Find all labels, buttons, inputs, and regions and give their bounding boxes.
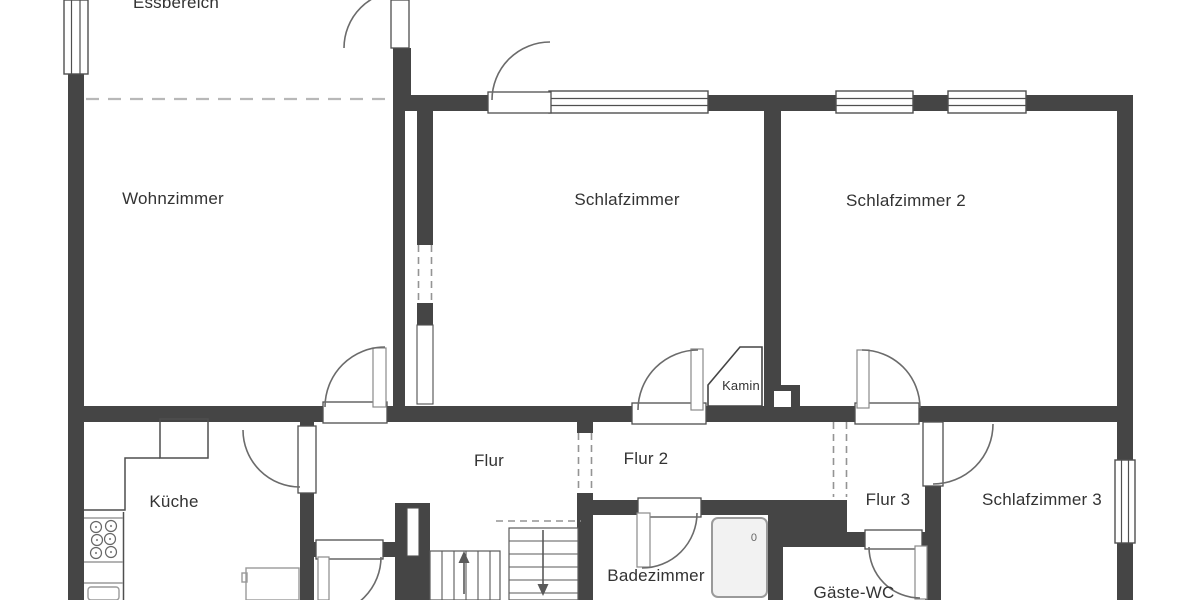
wall-segment: [577, 493, 593, 600]
wall-segment: [913, 95, 948, 111]
door-leaf: [691, 349, 703, 410]
door-leaf: [857, 350, 869, 408]
wall-segment: [300, 542, 318, 557]
door-leaf: [373, 348, 386, 407]
staircase: [430, 521, 581, 600]
cabinet: [160, 419, 208, 458]
wall-segment: [1026, 95, 1133, 111]
walls: [68, 48, 1133, 600]
door-threshold: [391, 0, 409, 48]
door-leaf: [318, 557, 329, 600]
wall-segment: [708, 95, 836, 111]
room-label-flur2: Flur 2: [624, 449, 669, 468]
wall-segment: [706, 406, 855, 422]
window-schlafzimmer: [549, 91, 708, 113]
wall-segment: [393, 48, 411, 95]
room-label-schlafzimmer: Schlafzimmer: [574, 190, 680, 209]
sink: [88, 587, 119, 600]
door-arc: [638, 350, 698, 410]
wall-segment: [700, 500, 768, 515]
door-arc: [324, 557, 381, 600]
room-label-flur: Flur: [474, 451, 504, 470]
wall-segment: [847, 532, 867, 547]
room-label-kamin: Kamin: [722, 378, 760, 393]
wall-segment: [1117, 543, 1133, 600]
room-label-schlafzimmer2: Schlafzimmer 2: [846, 191, 966, 210]
door-leaf: [637, 513, 650, 567]
wall-segment: [417, 111, 433, 245]
wall-segment: [919, 406, 1133, 422]
wall-niche: [417, 325, 433, 404]
stove: [91, 521, 117, 559]
door-arc: [862, 350, 920, 408]
wall-segment: [768, 500, 847, 547]
door-arc: [492, 42, 550, 100]
wall-segment: [593, 500, 640, 515]
wall-segment: [393, 111, 405, 406]
wall-segment: [764, 111, 781, 406]
room-label-gaeste-wc: Gäste-WC: [814, 583, 895, 600]
wall-segment: [768, 547, 783, 600]
floorplan-page: 0 Kamin Essbereich Wohnzimmer Schlafzimm…: [0, 0, 1200, 600]
fireplace: Kamin: [708, 347, 762, 406]
room-label-badezimmer: Badezimmer: [607, 566, 705, 585]
floorplan-canvas: 0 Kamin Essbereich Wohnzimmer Schlafzimm…: [0, 0, 1200, 600]
wall-segment: [417, 303, 433, 325]
door-threshold: [923, 422, 943, 486]
room-label-flur3: Flur 3: [866, 490, 911, 509]
window-left: [64, 0, 88, 74]
wall-notch: [774, 391, 791, 407]
window-schlafzimmer2-b: [948, 91, 1026, 113]
door-threshold: [488, 92, 551, 113]
shower-tray: [712, 518, 767, 597]
shower-mark: 0: [751, 532, 757, 544]
kitchen-counter: [246, 568, 299, 600]
wall-segment: [385, 406, 634, 422]
room-label-kueche: Küche: [149, 492, 198, 511]
fireplace-shape: [708, 347, 762, 406]
door-threshold: [316, 540, 383, 559]
door-threshold: [298, 426, 316, 493]
shower: 0: [712, 518, 767, 597]
shaft-niche: [407, 508, 419, 556]
door-arc: [243, 430, 300, 487]
window-schlafzimmer3: [1115, 460, 1135, 543]
room-label-schlafzimmer3: Schlafzimmer 3: [982, 490, 1102, 509]
door-threshold: [865, 530, 922, 549]
wall-segment: [68, 74, 84, 600]
wall-segment: [393, 95, 488, 111]
window-schlafzimmer2-a: [836, 91, 913, 113]
wall-segment: [577, 422, 593, 433]
room-label-wohnzimmer: Wohnzimmer: [122, 189, 224, 208]
door-leaf: [915, 546, 927, 599]
room-label-essbereich: Essbereich: [133, 0, 219, 12]
